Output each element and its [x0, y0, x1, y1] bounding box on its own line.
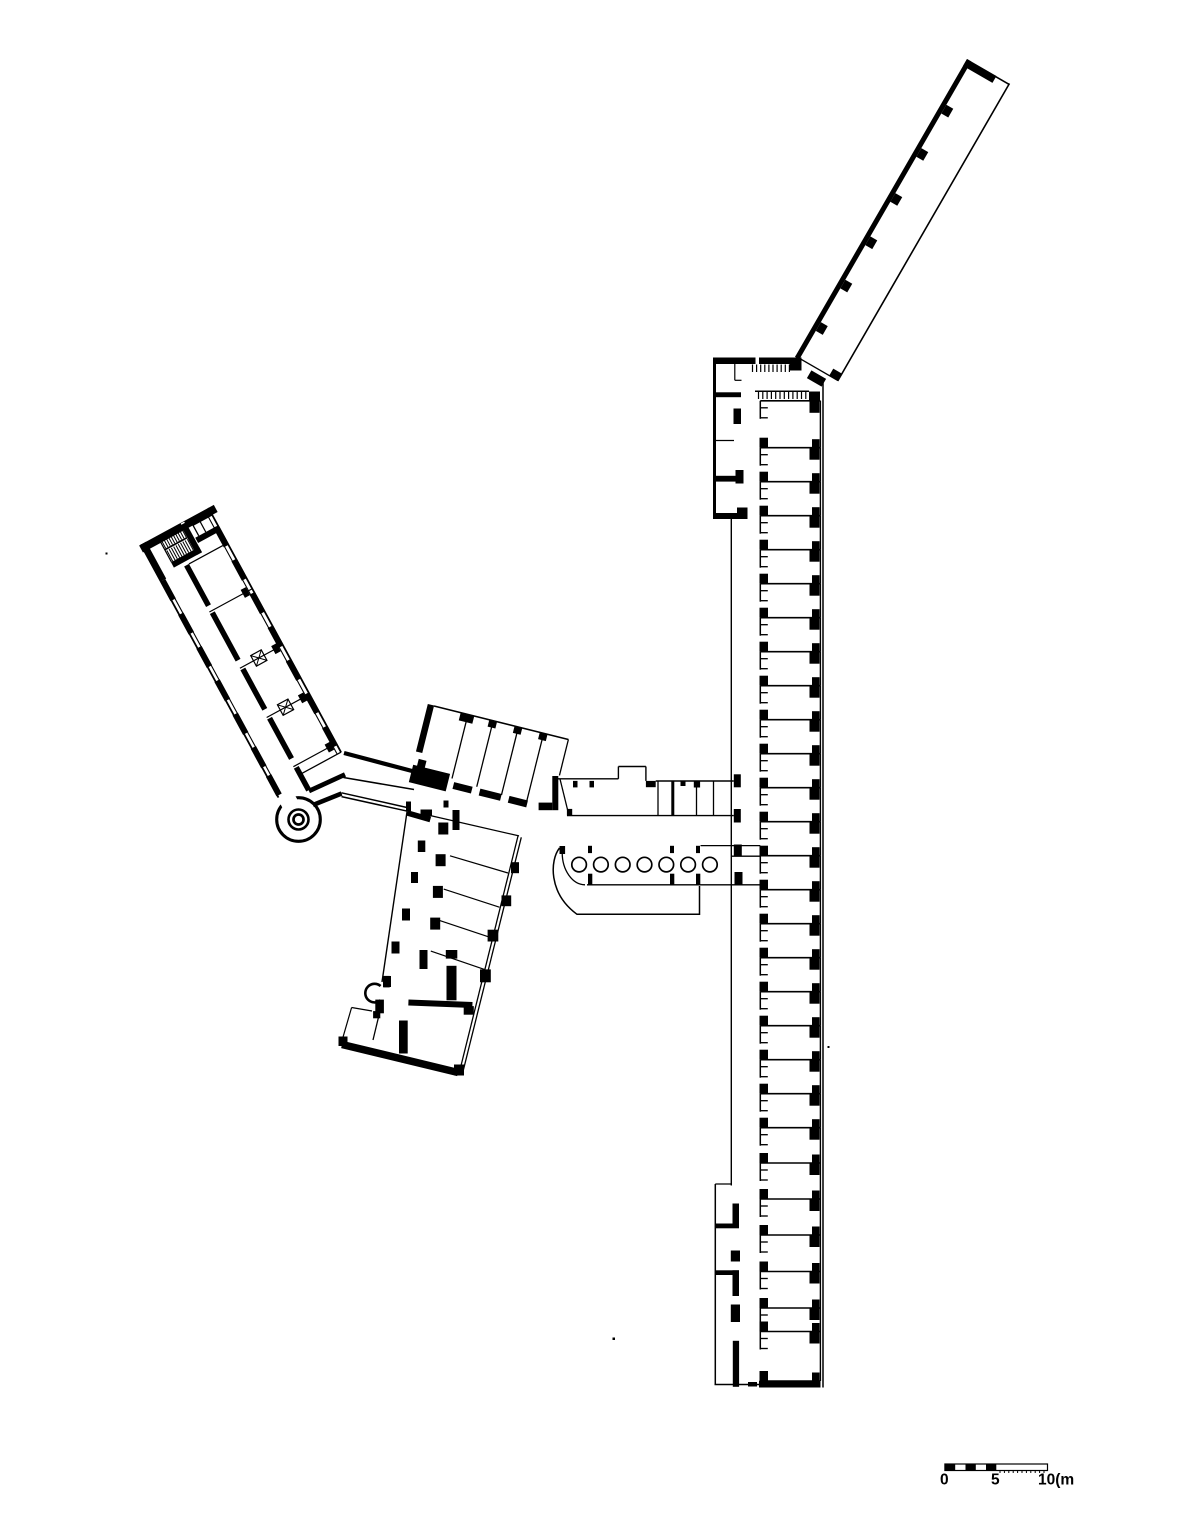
svg-text:5: 5	[991, 1472, 1000, 1489]
svg-text:0: 0	[940, 1472, 949, 1489]
svg-text:10(m: 10(m	[1038, 1472, 1074, 1489]
